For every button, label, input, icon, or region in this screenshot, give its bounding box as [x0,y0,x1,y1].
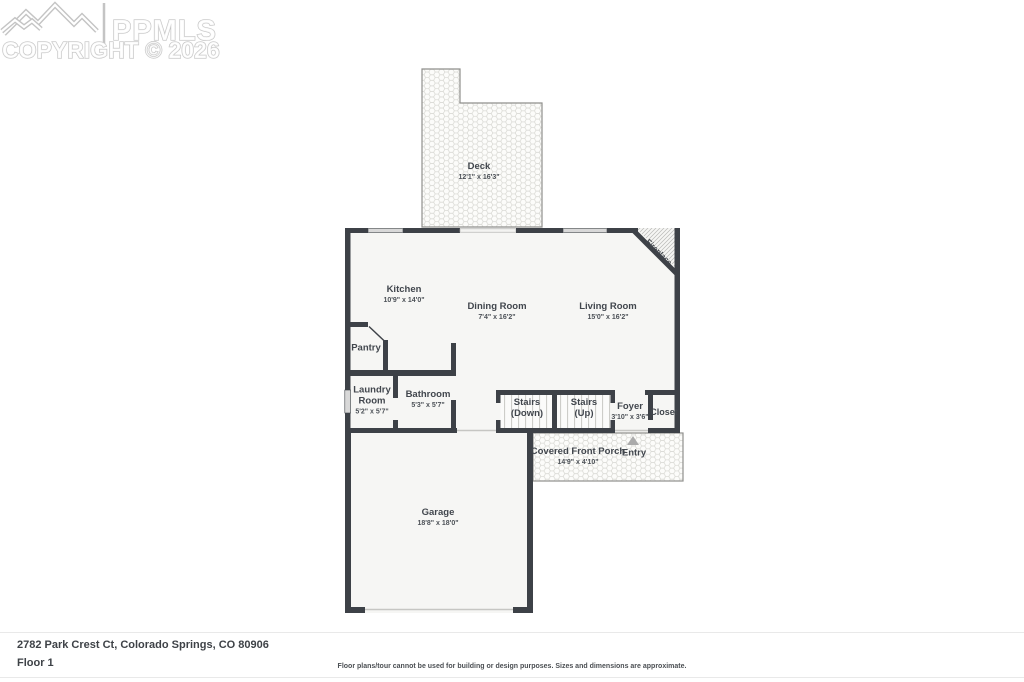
laundry-window [345,390,351,413]
floor-label: Floor 1 [17,657,54,669]
garage-label: Garage 18'8" x 18'0" [417,508,458,528]
property-address: 2782 Park Crest Ct, Colorado Springs, CO… [17,639,269,651]
floor-plan-canvas: PPMLS COPYRIGHT © 2026 [0,0,1024,682]
floor-plan-page: { "watermark": { "brand": "PPMLS", "copy… [0,0,1024,682]
laundry-room-label: Laundry Room 5'2" x 5'7" [351,386,393,417]
deck-area [422,69,542,227]
deck-door-opening [460,229,516,232]
kitchen-window [368,229,403,233]
disclaimer-text: Floor plans/tour cannot be used for buil… [338,663,687,670]
copyright-text: COPYRIGHT © 2026 [2,37,220,63]
bathroom-label: Bathroom 5'3" x 5'7" [406,390,451,410]
entry-label: Entry [622,449,646,460]
closet-label: Closet [650,407,678,417]
pantry-label: Pantry [351,344,381,355]
living-room-label: Living Room 15'0" x 16'2" [579,302,637,322]
living-window [563,229,607,233]
ppmls-watermark: PPMLS COPYRIGHT © 2026 [2,3,220,63]
stairs-down-label: Stairs (Down) [511,398,543,420]
footer-divider-bottom [0,677,1024,678]
porch-label: Covered Front Porch 14'9" x 4'10" [531,447,626,467]
deck-label: Deck 12'1" x 16'3" [458,162,499,182]
stairs-up-label: Stairs (Up) [571,398,597,420]
kitchen-label: Kitchen 10'9" x 14'0" [383,285,424,305]
dining-room-label: Dining Room 7'4" x 16'2" [467,302,526,322]
foyer-label: Foyer 3'10" x 3'6" [611,402,648,422]
footer-divider-top [0,632,1024,633]
